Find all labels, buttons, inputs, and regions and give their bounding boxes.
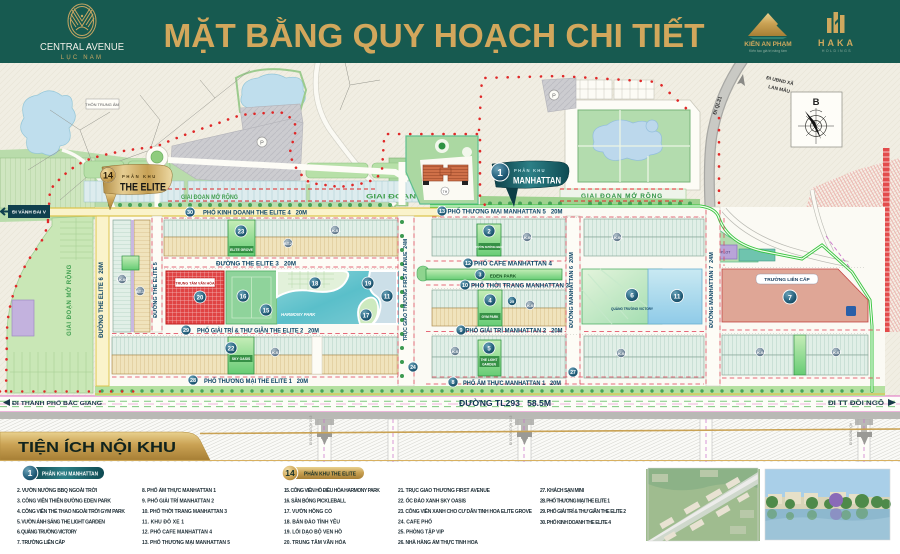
svg-text:LK.01: LK.01 bbox=[330, 228, 342, 233]
svg-text:22: 22 bbox=[228, 347, 235, 353]
svg-text:18: 18 bbox=[312, 282, 319, 288]
svg-text:Kiến tạo giá trị nâng tầm: Kiến tạo giá trị nâng tầm bbox=[749, 49, 787, 53]
svg-text:THÔN TRUNG ÂM: THÔN TRUNG ÂM bbox=[85, 102, 119, 107]
svg-text:LK.06: LK.06 bbox=[612, 235, 624, 240]
svg-text:ĐƯỜNG THE ELITE 6 20M: ĐƯỜNG THE ELITE 6 20M bbox=[97, 262, 105, 338]
svg-text:ELITE GROVE: ELITE GROVE bbox=[230, 248, 254, 252]
svg-text:13. PHỐ THƯƠNG MẠI MANHATTAN 5: 13. PHỐ THƯƠNG MẠI MANHATTAN 5 bbox=[142, 539, 230, 546]
svg-text:10: 10 bbox=[462, 283, 468, 289]
svg-text:PHÂN KHU: PHÂN KHU bbox=[122, 174, 157, 179]
svg-text:10. PHỐ THỜI TRANG MANHATTAN 3: 10. PHỐ THỜI TRANG MANHATTAN 3 bbox=[142, 507, 227, 515]
svg-text:HARMONY PARK: HARMONY PARK bbox=[281, 312, 316, 317]
svg-text:11. KHU ĐỖ XE 1: 11. KHU ĐỖ XE 1 bbox=[142, 519, 184, 526]
svg-text:THE LIGHT: THE LIGHT bbox=[481, 358, 498, 362]
svg-text:20: 20 bbox=[197, 296, 204, 302]
svg-text:1: 1 bbox=[28, 468, 33, 478]
svg-text:TRUNG TÂM VĂN HÓA: TRUNG TÂM VĂN HÓA bbox=[175, 281, 215, 286]
svg-text:GIAI ĐOẠN MỞ RỘNG: GIAI ĐOẠN MỞ RỘNG bbox=[181, 192, 238, 201]
svg-text:VƯỜN NƯỚNG BBQ: VƯỜN NƯỚNG BBQ bbox=[475, 244, 503, 249]
svg-text:5. VƯỜN ÁNH SÁNG THE LIGHT GAR: 5. VƯỜN ÁNH SÁNG THE LIGHT GARDEN bbox=[17, 518, 105, 526]
svg-text:28. PHỐ THƯƠNG MẠI THE ELITE 1: 28. PHỐ THƯƠNG MẠI THE ELITE 1 bbox=[540, 498, 610, 505]
svg-text:GARDEN: GARDEN bbox=[482, 363, 497, 367]
svg-text:14: 14 bbox=[103, 171, 113, 181]
svg-text:27. KHÁCH SẠN MINI: 27. KHÁCH SẠN MINI bbox=[540, 487, 585, 494]
svg-text:BT.2: BT.2 bbox=[284, 241, 293, 246]
svg-text:18. BÁN ĐẢO TÌNH YÊU: 18. BÁN ĐẢO TÌNH YÊU bbox=[284, 518, 340, 526]
svg-text:PHỐ GIẢI TRÍ MANHATTAN 2 20M: PHỐ GIẢI TRÍ MANHATTAN 2 20M bbox=[466, 327, 563, 335]
svg-text:ĐƯỜNG THE ELITE 5: ĐƯỜNG THE ELITE 5 bbox=[151, 262, 159, 318]
svg-text:THE ELITE: THE ELITE bbox=[120, 182, 166, 194]
svg-text:ĐI ĐƯỜNG QH 29.5: ĐI ĐƯỜNG QH 29.5 bbox=[508, 415, 513, 445]
svg-text:3. CÔNG VIÊN THIÊN ĐƯỜNG EDEN: 3. CÔNG VIÊN THIÊN ĐƯỜNG EDEN PARK bbox=[17, 497, 111, 505]
svg-text:ĐƯỜNG MANHATTAN 7 24M: ĐƯỜNG MANHATTAN 7 24M bbox=[707, 252, 715, 328]
svg-text:ĐƯỜNG TL293 58.5M: ĐƯỜNG TL293 58.5M bbox=[459, 399, 551, 408]
svg-text:LK.09: LK.09 bbox=[117, 277, 129, 282]
svg-text:LỤC NAM: LỤC NAM bbox=[61, 55, 103, 61]
svg-text:15: 15 bbox=[263, 309, 270, 315]
svg-text:15. CÔNG VIÊN HỒ ĐIỀU HÒA HARM: 15. CÔNG VIÊN HỒ ĐIỀU HÒA HARMONY PARK bbox=[284, 486, 380, 494]
svg-text:23. CÔNG VIÊN XANH CHO CƯ DÂN: 23. CÔNG VIÊN XANH CHO CƯ DÂN TINH HOA E… bbox=[398, 507, 533, 515]
svg-text:4. CÔNG VIÊN THỂ THAO NGOÀI TR: 4. CÔNG VIÊN THỂ THAO NGOÀI TRỜI GYM PAR… bbox=[17, 507, 125, 515]
svg-text:ĐI TT ĐỒI NGÔ: ĐI TT ĐỒI NGÔ bbox=[828, 399, 884, 407]
svg-text:14: 14 bbox=[285, 468, 295, 478]
svg-text:24. CAFE PHỐ: 24. CAFE PHỐ bbox=[398, 519, 432, 526]
svg-text:16: 16 bbox=[240, 295, 247, 301]
svg-text:LK.07: LK.07 bbox=[831, 350, 843, 355]
svg-text:QUẢNG TRƯỜNG VICTORY: QUẢNG TRƯỜNG VICTORY bbox=[611, 306, 654, 311]
svg-text:26. NHÀ HÀNG ẨM THỰC TINH HOA: 26. NHÀ HÀNG ẨM THỰC TINH HOA bbox=[398, 539, 478, 546]
svg-text:GYM PARK: GYM PARK bbox=[482, 315, 500, 319]
svg-text:LK.03: LK.03 bbox=[450, 349, 462, 354]
svg-text:2. VƯỜN NƯỚNG BBQ NGOÀI TRỜI: 2. VƯỜN NƯỚNG BBQ NGOÀI TRỜI bbox=[17, 486, 98, 494]
svg-text:23: 23 bbox=[238, 230, 245, 236]
svg-text:ĐI ĐƯỜNG QH: ĐI ĐƯỜNG QH bbox=[848, 422, 853, 445]
svg-text:ĐI THÀNH PHỐ BẮC GIANG: ĐI THÀNH PHỐ BẮC GIANG bbox=[12, 399, 102, 407]
svg-text:BT.1: BT.1 bbox=[136, 289, 145, 294]
svg-text:P: P bbox=[260, 141, 264, 147]
svg-text:PHỐ CAFE MANHATTAN 4: PHỐ CAFE MANHATTAN 4 bbox=[474, 261, 553, 268]
svg-text:9. PHỐ GIẢI TRÍ MANHATTAN 2: 9. PHỐ GIẢI TRÍ MANHATTAN 2 bbox=[142, 497, 214, 505]
svg-text:PHỐ GIẢI TRÍ & THƯ GIÃN THE EL: PHỐ GIẢI TRÍ & THƯ GIÃN THE ELITE 2 20M bbox=[197, 327, 319, 335]
svg-text:1: 1 bbox=[497, 168, 503, 179]
svg-text:MẶT BẰNG QUY HOẠCH CHI TIẾT: MẶT BẰNG QUY HOẠCH CHI TIẾT bbox=[164, 17, 705, 54]
svg-text:LK.06: LK.06 bbox=[522, 235, 534, 240]
svg-text:MANHATTAN: MANHATTAN bbox=[513, 176, 561, 187]
svg-text:PHỐ THỜI TRANG MANHATTAN 3: PHỐ THỜI TRANG MANHATTAN 3 bbox=[471, 282, 570, 290]
svg-text:7: 7 bbox=[788, 295, 792, 302]
svg-text:LK.05: LK.05 bbox=[525, 303, 537, 308]
svg-text:HOLDINGS: HOLDINGS bbox=[822, 49, 852, 53]
svg-text:ĐƯỜNG THE ELITE 3 20M: ĐƯỜNG THE ELITE 3 20M bbox=[216, 260, 296, 268]
svg-text:PHỐ KINH DOANH THE ELITE 4 2: PHỐ KINH DOANH THE ELITE 4 20M bbox=[203, 210, 307, 217]
svg-text:ĐƯỜNG MANHATTAN 6 20M: ĐƯỜNG MANHATTAN 6 20M bbox=[567, 252, 575, 328]
svg-text:PHỐ THƯƠNG MẠI MANHATTAN 5 2: PHỐ THƯƠNG MẠI MANHATTAN 5 20M bbox=[448, 209, 563, 216]
svg-text:17. VƯỜN HỒNG CỔ: 17. VƯỜN HỒNG CỔ bbox=[284, 507, 332, 515]
svg-text:21. TRỤC GIAO THƯƠNG FIRST AVE: 21. TRỤC GIAO THƯƠNG FIRST AVENUE bbox=[398, 488, 491, 494]
svg-text:22. ỐC ĐẢO XANH SKY OASIS: 22. ỐC ĐẢO XANH SKY OASIS bbox=[398, 498, 467, 505]
svg-text:27: 27 bbox=[570, 370, 576, 376]
svg-text:24: 24 bbox=[410, 365, 416, 371]
svg-text:LK.04: LK.04 bbox=[616, 351, 628, 356]
svg-text:25. PHÒNG TẬP VIP: 25. PHÒNG TẬP VIP bbox=[398, 528, 445, 536]
svg-text:29: 29 bbox=[183, 328, 189, 334]
svg-text:ĐI VÀNH ĐAI V: ĐI VÀNH ĐAI V bbox=[12, 209, 47, 216]
svg-text:TIỆN ÍCH NỘI KHU: TIỆN ÍCH NỘI KHU bbox=[18, 438, 176, 456]
svg-text:9: 9 bbox=[459, 328, 462, 334]
svg-text:HAKA: HAKA bbox=[818, 38, 856, 48]
svg-text:11: 11 bbox=[384, 295, 391, 301]
svg-text:8: 8 bbox=[451, 380, 454, 386]
svg-text:PHÂN KHU THE ELITE: PHÂN KHU THE ELITE bbox=[304, 470, 357, 477]
svg-text:TRỤC GIAO THƯƠNG FIRST AVENUE: TRỤC GIAO THƯƠNG FIRST AVENUE 24M bbox=[403, 239, 409, 341]
svg-text:P: P bbox=[552, 94, 556, 100]
svg-text:20. TRUNG TÂM VĂN HÓA: 20. TRUNG TÂM VĂN HÓA bbox=[284, 538, 346, 546]
svg-text:30. PHỐ KINH DOANH THE ELITE 4: 30. PHỐ KINH DOANH THE ELITE 4 bbox=[540, 519, 611, 526]
svg-text:SKY OASIS: SKY OASIS bbox=[232, 357, 251, 361]
svg-text:25: 25 bbox=[510, 299, 515, 304]
svg-text:19: 19 bbox=[365, 282, 372, 288]
svg-text:PHỐ THƯƠNG MẠI THE ELITE 1 2: PHỐ THƯƠNG MẠI THE ELITE 1 20M bbox=[204, 378, 308, 385]
svg-text:B: B bbox=[813, 97, 820, 108]
svg-text:6. QUẢNG TRƯỜNG VICTORY: 6. QUẢNG TRƯỜNG VICTORY bbox=[17, 528, 78, 536]
svg-text:19. LỐI DẠO BỘ VEN HỒ: 19. LỐI DẠO BỘ VEN HỒ bbox=[284, 528, 342, 536]
svg-text:7. TRƯỜNG LIÊN CẤP: 7. TRƯỜNG LIÊN CẤP bbox=[17, 538, 66, 546]
svg-text:29. PHỐ GIẢI TRÍ & THƯ GIÃN TH: 29. PHỐ GIẢI TRÍ & THƯ GIÃN THE ELITE 2 bbox=[540, 507, 626, 515]
svg-text:30: 30 bbox=[187, 210, 193, 216]
svg-text:17: 17 bbox=[363, 314, 370, 320]
svg-text:12. PHỐ CAFE MANHATTAN 4: 12. PHỐ CAFE MANHATTAN 4 bbox=[142, 529, 212, 536]
svg-text:P.LOT: P.LOT bbox=[721, 251, 732, 255]
svg-text:6: 6 bbox=[630, 293, 634, 300]
svg-text:TH: TH bbox=[443, 190, 448, 194]
svg-text:8. PHỐ ẨM THỰC MANHATTAN 1: 8. PHỐ ẨM THỰC MANHATTAN 1 bbox=[142, 487, 216, 494]
svg-text:LK.03: LK.03 bbox=[270, 350, 282, 355]
svg-text:PHÂN KHU MANHATTAN: PHÂN KHU MANHATTAN bbox=[42, 470, 98, 477]
svg-text:GIAI ĐOẠN MỞ RỘNG: GIAI ĐOẠN MỞ RỘNG bbox=[65, 264, 73, 336]
svg-text:11: 11 bbox=[674, 294, 681, 301]
svg-text:PHỐ ẨM THỰC MANHATTAN 1 20M: PHỐ ẨM THỰC MANHATTAN 1 20M bbox=[463, 380, 561, 387]
svg-text:ĐI ĐƯỜNG QH 29.5: ĐI ĐƯỜNG QH 29.5 bbox=[308, 415, 313, 445]
svg-text:LK.04: LK.04 bbox=[755, 350, 767, 355]
svg-text:EDEN PARK: EDEN PARK bbox=[490, 274, 517, 279]
svg-text:PHÂN KHU: PHÂN KHU bbox=[514, 168, 546, 173]
svg-text:CENTRAL AVENUE: CENTRAL AVENUE bbox=[40, 42, 124, 53]
svg-text:3: 3 bbox=[479, 273, 482, 279]
svg-text:16. SÂN BÓNG PICKLEBALL: 16. SÂN BÓNG PICKLEBALL bbox=[284, 497, 346, 505]
svg-text:13: 13 bbox=[439, 209, 445, 215]
svg-text:28: 28 bbox=[190, 378, 196, 384]
svg-text:12: 12 bbox=[465, 261, 471, 267]
